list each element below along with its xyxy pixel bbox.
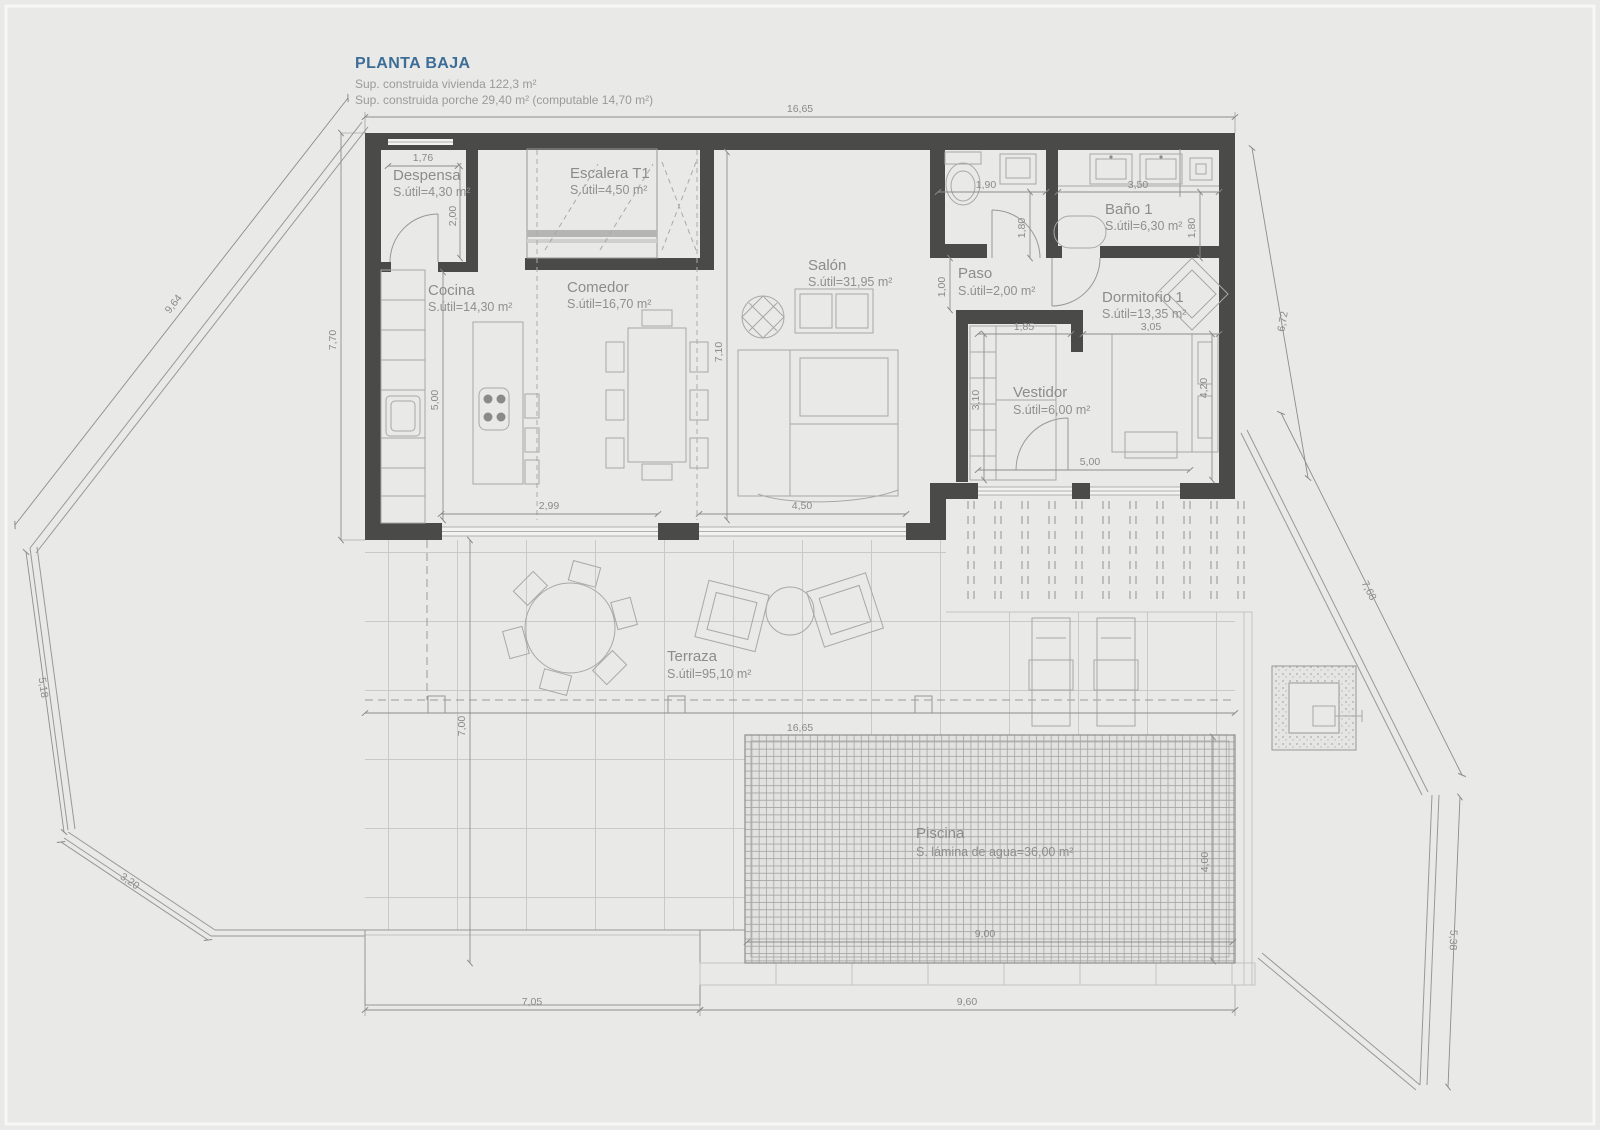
- dim-label: 1,90: [976, 179, 997, 191]
- room-label: Terraza: [667, 648, 718, 665]
- vestidor-door: [1016, 418, 1068, 470]
- dim-label: 5,00: [429, 390, 441, 411]
- dim-label: 7,68: [1359, 579, 1379, 603]
- dim-label: 3,05: [1141, 321, 1162, 333]
- dim-label: 2,99: [539, 500, 560, 512]
- dim-label: 5,18: [36, 677, 51, 699]
- floorplan-drawing: Despensa S.útil=4,30 m² Escalera T1 S.út…: [0, 0, 1600, 1130]
- room-area: S.útil=4,50 m²: [570, 183, 647, 197]
- dim-label: 1,80: [1186, 218, 1198, 239]
- room-label: Vestidor: [1013, 384, 1067, 401]
- pool-coping: [700, 963, 1255, 985]
- floorplan-sheet: Despensa S.útil=4,30 m² Escalera T1 S.út…: [0, 0, 1600, 1130]
- dim-label: 5,38: [1447, 930, 1460, 951]
- dim-label: 7,05: [522, 996, 543, 1008]
- kitchen-island: [473, 322, 523, 484]
- dim-label: 16,65: [787, 722, 813, 734]
- sofa: [738, 350, 898, 496]
- dim-label: 4,00: [1199, 852, 1211, 873]
- despensa-door: [390, 214, 438, 262]
- lower-patio-slab: [365, 930, 700, 1005]
- bench: [1125, 432, 1177, 458]
- bedroom-furniture: [1112, 258, 1228, 458]
- spa-structure: [1272, 666, 1362, 750]
- room-label: Piscina: [916, 825, 965, 842]
- plan-title: PLANTA BAJA: [355, 55, 653, 73]
- dim-label: 1,80: [1016, 218, 1028, 239]
- bathtub: [1054, 216, 1106, 248]
- room-area: S. lámina de agua=36,00 m²: [916, 845, 1073, 859]
- room-label: Despensa: [393, 167, 461, 184]
- dim-label: 16,65: [787, 103, 813, 115]
- room-divider-dashed: [537, 150, 697, 520]
- dim-label: 1,85: [1014, 321, 1035, 333]
- built-area-dwelling: Sup. construida vivienda 122,3 m²: [355, 76, 653, 92]
- room-area: S.útil=14,30 m²: [428, 300, 512, 314]
- porch-decking: [958, 500, 1245, 600]
- room-label: Dormitorio 1: [1102, 289, 1184, 306]
- dim-label: 4,50: [792, 500, 813, 512]
- walls: [365, 133, 1235, 540]
- doors: [390, 210, 1100, 470]
- room-label: Paso: [958, 265, 992, 282]
- dim-label: 9,00: [975, 928, 996, 940]
- room-area: S.útil=31,95 m²: [808, 275, 892, 289]
- room-label: Escalera T1: [570, 165, 650, 182]
- room-label: Cocina: [428, 282, 475, 299]
- title-block: PLANTA BAJA Sup. construida vivienda 122…: [355, 55, 653, 108]
- dim-label: 9,60: [957, 996, 978, 1008]
- dim-label: 7,10: [713, 342, 725, 363]
- room-area: S.útil=13,35 m²: [1102, 307, 1186, 321]
- room-label: Salón: [808, 257, 846, 274]
- dim-label: 7,70: [327, 330, 339, 351]
- dim-label: 4,20: [1198, 378, 1210, 399]
- dim-label: 2,00: [447, 206, 459, 227]
- dim-label: 1,76: [413, 152, 434, 164]
- room-area: S.útil=95,10 m²: [667, 667, 751, 681]
- room-area: S.útil=6,00 m²: [1013, 403, 1090, 417]
- dim-label: 6,72: [1275, 310, 1290, 332]
- dim-label: 3,50: [1128, 179, 1149, 191]
- dim-label: 9,64: [163, 292, 185, 316]
- dim-label: 1,00: [936, 277, 948, 298]
- room-label: Comedor: [567, 279, 629, 296]
- room-area: S.útil=6,30 m²: [1105, 219, 1182, 233]
- living-room-furniture: [738, 289, 898, 502]
- built-area-porch: Sup. construida porche 29,40 m² (computa…: [355, 92, 653, 108]
- shower: [1190, 158, 1212, 180]
- tv-bench: [795, 289, 873, 333]
- dining-table: [628, 328, 686, 462]
- room-label: Baño 1: [1105, 201, 1153, 218]
- room-area: S.útil=16,70 m²: [567, 297, 651, 311]
- dim-label: 3,10: [970, 390, 982, 411]
- dim-label: 3,20: [118, 871, 142, 892]
- dining-set: [606, 310, 708, 480]
- hob: [479, 388, 509, 430]
- dormitorio-door: [1052, 258, 1100, 306]
- dim-label: 5,00: [1080, 456, 1101, 468]
- room-area: S.útil=2,00 m²: [958, 284, 1035, 298]
- room-area: S.útil=4,30 m²: [393, 185, 470, 199]
- dim-label: 7,00: [456, 716, 468, 737]
